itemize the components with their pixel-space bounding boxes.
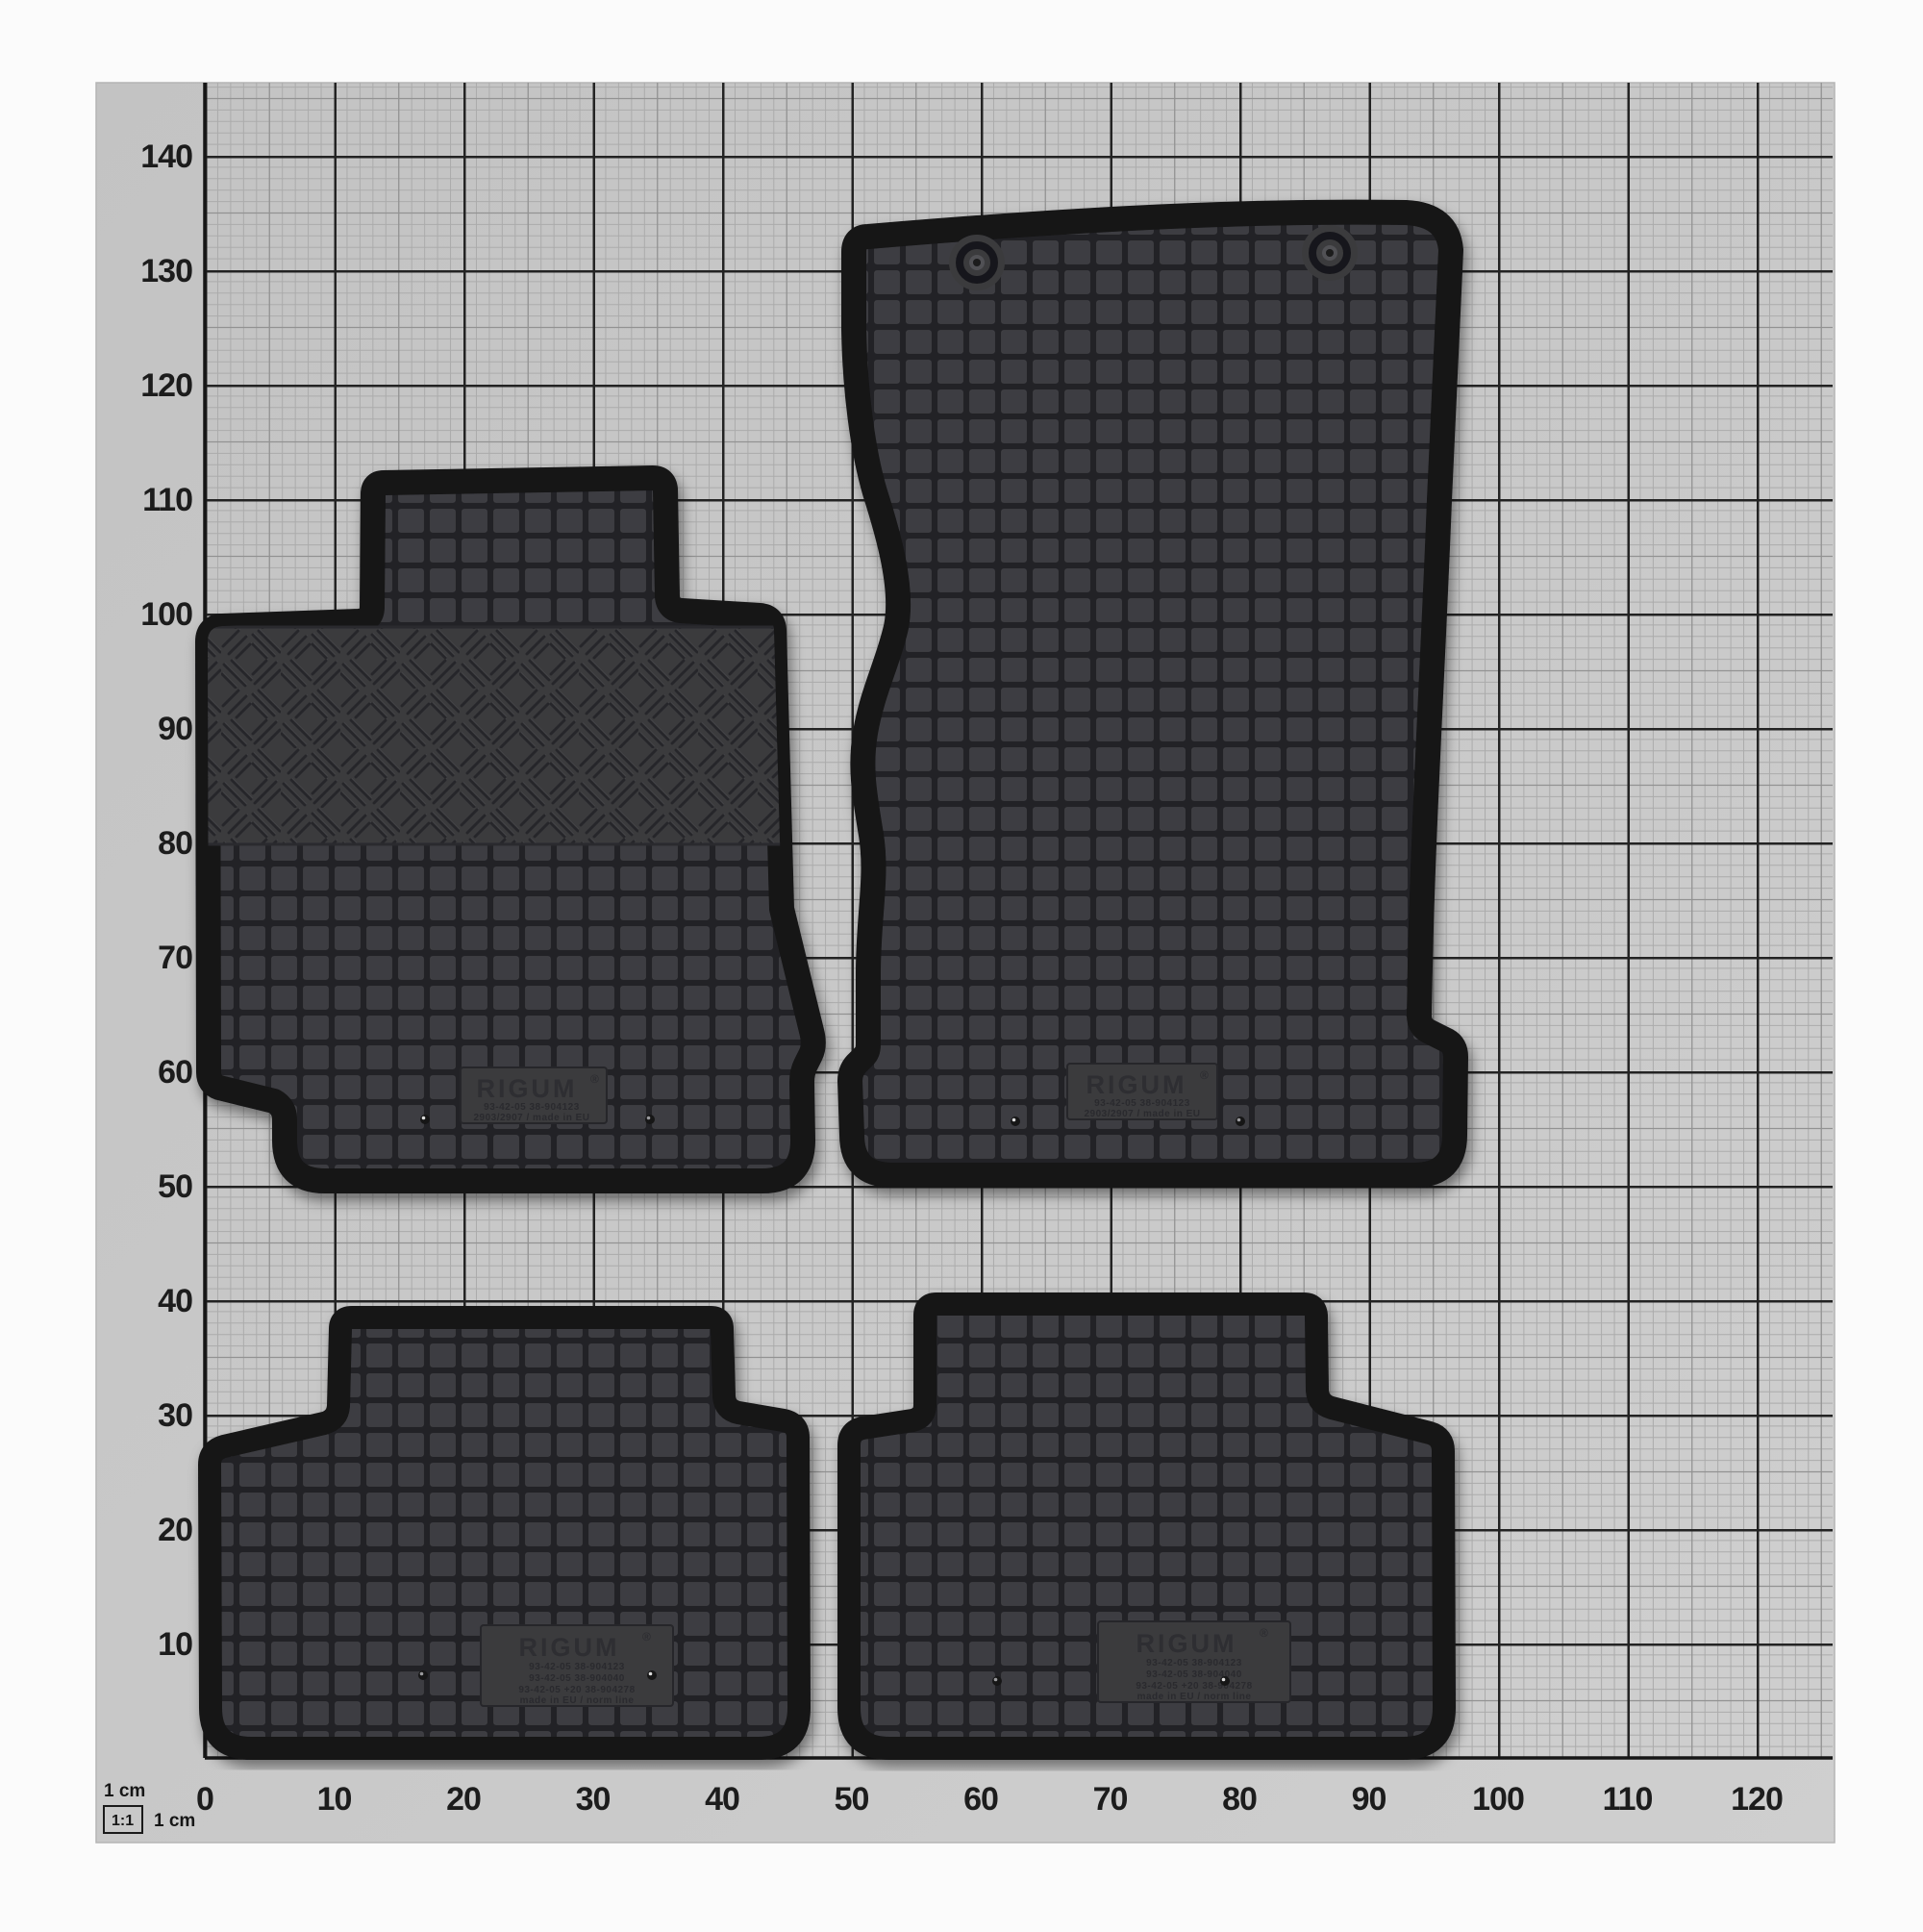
- y-tick-label: 100: [140, 596, 192, 633]
- origin-line: made in EU / norm line: [520, 1695, 635, 1706]
- grommet-left: [949, 235, 1005, 290]
- brand-logo: RIGUM: [1086, 1070, 1187, 1099]
- x-tick-label: 60: [963, 1781, 998, 1818]
- y-tick-label: 70: [158, 940, 192, 976]
- origin-line: made in EU / norm line: [1137, 1692, 1252, 1702]
- part-number-line: 93-42-05 38-904123: [1146, 1658, 1242, 1669]
- product-photo: 140130120110100908070605040302010 010203…: [0, 0, 1923, 1932]
- x-tick-label: 40: [705, 1781, 739, 1818]
- brand-logo: RIGUM: [477, 1074, 578, 1103]
- grommet-right: [1302, 225, 1358, 281]
- y-tick-label: 60: [158, 1054, 192, 1091]
- x-tick-label: 90: [1352, 1781, 1386, 1818]
- registered-icon: ®: [642, 1630, 651, 1643]
- y-tick-label: 80: [158, 825, 192, 862]
- x-tick-label: 50: [835, 1781, 869, 1818]
- x-tick-label: 120: [1731, 1781, 1783, 1818]
- x-tick-label: 100: [1472, 1781, 1524, 1818]
- part-number-line: 93-42-05 38-904123: [529, 1662, 625, 1672]
- mat-outline: [850, 213, 1456, 1175]
- registered-icon: ®: [1200, 1068, 1209, 1082]
- mat-label-plate: RIGUM ® 93-42-05 38-904123 93-42-05 38-9…: [1098, 1621, 1290, 1702]
- y-tick-label: 110: [142, 482, 192, 518]
- x-tick-label: 80: [1222, 1781, 1257, 1818]
- part-number-line: 93-42-05 +20 38-904278: [518, 1685, 635, 1695]
- y-tick-label: 90: [158, 711, 192, 747]
- x-tick-label: 110: [1603, 1781, 1653, 1818]
- legend-ratio: 1:1: [112, 1813, 134, 1829]
- y-tick-label: 50: [158, 1168, 192, 1205]
- x-tick-label: 20: [446, 1781, 481, 1818]
- y-tick-label: 20: [158, 1512, 192, 1548]
- origin-line: 2903/2907 / made in EU: [1084, 1109, 1200, 1119]
- brand-logo: RIGUM: [1136, 1629, 1237, 1658]
- origin-line: 2903/2907 / made in EU: [473, 1113, 589, 1123]
- mat-front-driver: RIGUM ® 93-42-05 38-904123 2903/2907 / m…: [850, 213, 1456, 1175]
- legend-unit-top: 1 cm: [104, 1781, 145, 1801]
- mat-label-plate: RIGUM ® 93-42-05 38-904123 93-42-05 38-9…: [481, 1625, 673, 1706]
- part-number-line: 93-42-05 38-904123: [1094, 1098, 1190, 1109]
- legend-unit-side: 1 cm: [154, 1811, 195, 1831]
- mat-label-plate: RIGUM ® 93-42-05 38-904123 2903/2907 / m…: [461, 1067, 607, 1123]
- part-number-line: 93-42-05 38-904040: [529, 1673, 625, 1684]
- registered-icon: ®: [590, 1072, 599, 1086]
- y-tick-label: 10: [158, 1626, 192, 1663]
- part-number-line: 93-42-05 38-904123: [484, 1102, 580, 1113]
- x-tick-label: 10: [317, 1781, 352, 1818]
- registered-icon: ®: [1260, 1626, 1268, 1640]
- part-number-line: 93-42-05 +20 38-904278: [1136, 1681, 1252, 1692]
- y-tick-label: 40: [158, 1283, 192, 1319]
- x-tick-label: 70: [1093, 1781, 1128, 1818]
- heel-pad: [202, 627, 798, 844]
- y-tick-label: 140: [140, 138, 192, 175]
- x-tick-label: 0: [196, 1781, 213, 1818]
- y-tick-label: 30: [158, 1397, 192, 1434]
- brand-logo: RIGUM: [519, 1633, 620, 1662]
- y-tick-label: 120: [140, 367, 192, 404]
- photo-canvas: 140130120110100908070605040302010 010203…: [0, 0, 1923, 1932]
- x-tick-label: 30: [576, 1781, 611, 1818]
- mat-label-plate: RIGUM ® 93-42-05 38-904123 2903/2907 / m…: [1067, 1064, 1217, 1119]
- y-tick-label: 130: [140, 253, 192, 289]
